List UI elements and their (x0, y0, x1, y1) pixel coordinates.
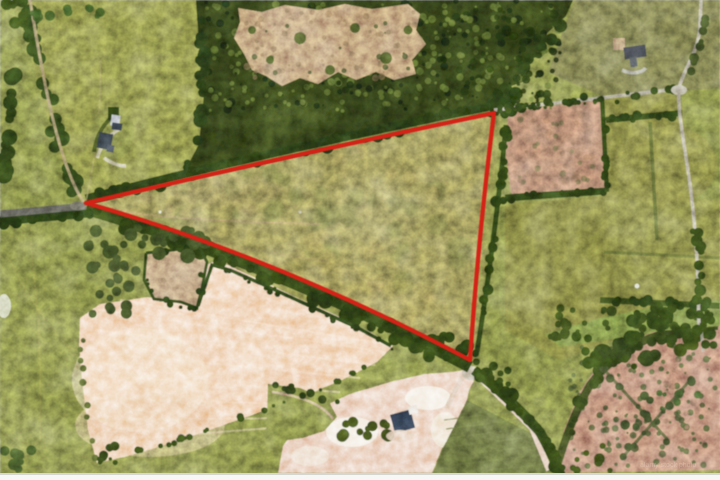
svg-text:alamy stock photo: alamy stock photo (640, 462, 697, 469)
